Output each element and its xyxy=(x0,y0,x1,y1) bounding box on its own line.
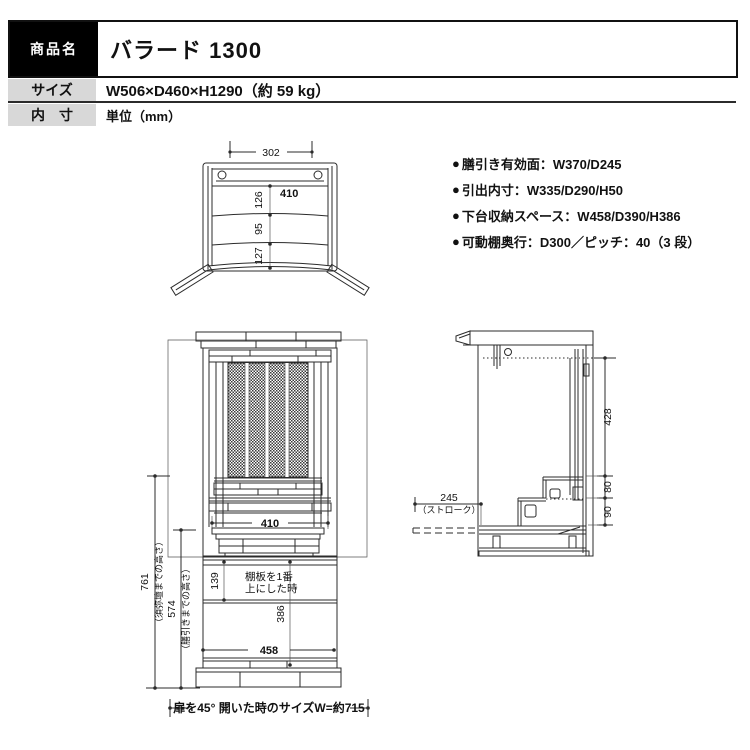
dim-761-label: 761 xyxy=(139,573,151,591)
spec-sheet: 商品名 バラード 1300 サイズ W506×D460×H1290（約 59 k… xyxy=(0,0,750,750)
front-view-left-dims: 761 （須弥壇までの高さ） 574 （膳引きまでの高さ） xyxy=(139,474,200,690)
dim-428-label: 428 xyxy=(602,408,614,426)
side-view-dim-245: 245 （ストローク） xyxy=(413,492,483,525)
front-view-tray xyxy=(212,528,324,557)
dim-139-label: 139 xyxy=(209,572,221,590)
open-width-note: 扉を45° 開いた時のサイズW=約715 xyxy=(173,700,365,715)
dim-127-label: 127 xyxy=(253,247,265,265)
side-view-body xyxy=(478,345,593,556)
dim-80-label: 80 xyxy=(602,481,614,493)
dim-245-label: 245 xyxy=(440,492,458,504)
dim-410-top-label: 410 xyxy=(280,188,298,200)
product-name-row: 商品名 バラード 1300 xyxy=(8,20,738,78)
dim-245-note: （ストローク） xyxy=(417,505,480,515)
side-view-right-dims: 428 80 90 xyxy=(583,356,616,527)
top-view-dim-302: 302 xyxy=(228,141,313,159)
top-view-interior-dims: 126 95 127 410 xyxy=(253,184,298,270)
dim-90-label: 90 xyxy=(602,506,614,518)
technical-drawings: 302 xyxy=(0,130,750,750)
side-view-base xyxy=(479,534,589,556)
front-view-plinth xyxy=(196,668,341,687)
front-view-dim-458: 458 xyxy=(201,645,336,657)
inner-dims-label: 内 寸 xyxy=(8,104,96,126)
front-view-lower-cabinet: 139 棚板を1番 上にした時 386 458 xyxy=(201,557,337,668)
front-view-open-width-dim: 扉を45° 開いた時のサイズW=約715 xyxy=(168,699,370,717)
dim-126-label: 126 xyxy=(253,191,265,209)
side-view-crown xyxy=(456,331,593,345)
product-name-label: 商品名 xyxy=(10,22,98,76)
dim-574-note: （膳引きまでの高さ） xyxy=(180,564,191,654)
inner-dims-value: 単位（mm） xyxy=(96,104,736,126)
dim-761-note: （須弥壇までの高さ） xyxy=(153,537,164,627)
front-view-mid-rails xyxy=(209,478,331,513)
size-value: W506×D460×H1290（約 59 kg） xyxy=(96,79,736,101)
front-view-mesh-panel xyxy=(228,363,308,477)
front-view-upper-cabinet: 410 xyxy=(203,348,337,557)
dim-302-label: 302 xyxy=(262,147,280,159)
size-label: サイズ xyxy=(8,79,96,101)
inner-dims-row: 内 寸 単位（mm） xyxy=(8,104,736,126)
dim-95-label: 95 xyxy=(253,223,265,235)
side-view-tray-extension xyxy=(413,528,478,533)
product-name-value: バラード 1300 xyxy=(98,22,736,76)
top-view-drawing: 302 xyxy=(171,141,369,295)
dim-574-label: 574 xyxy=(166,600,178,618)
front-view-dim-139: 139 xyxy=(209,560,226,602)
shelf-note-line1: 棚板を1番 xyxy=(245,570,293,583)
size-row: サイズ W506×D460×H1290（約 59 kg） xyxy=(8,79,736,103)
side-view-drawing: 245 （ストローク） 428 80 90 xyxy=(413,331,616,556)
dim-458-label: 458 xyxy=(260,645,278,657)
dim-386-label: 386 xyxy=(275,605,287,623)
front-view-drawing: 410 xyxy=(139,332,370,717)
